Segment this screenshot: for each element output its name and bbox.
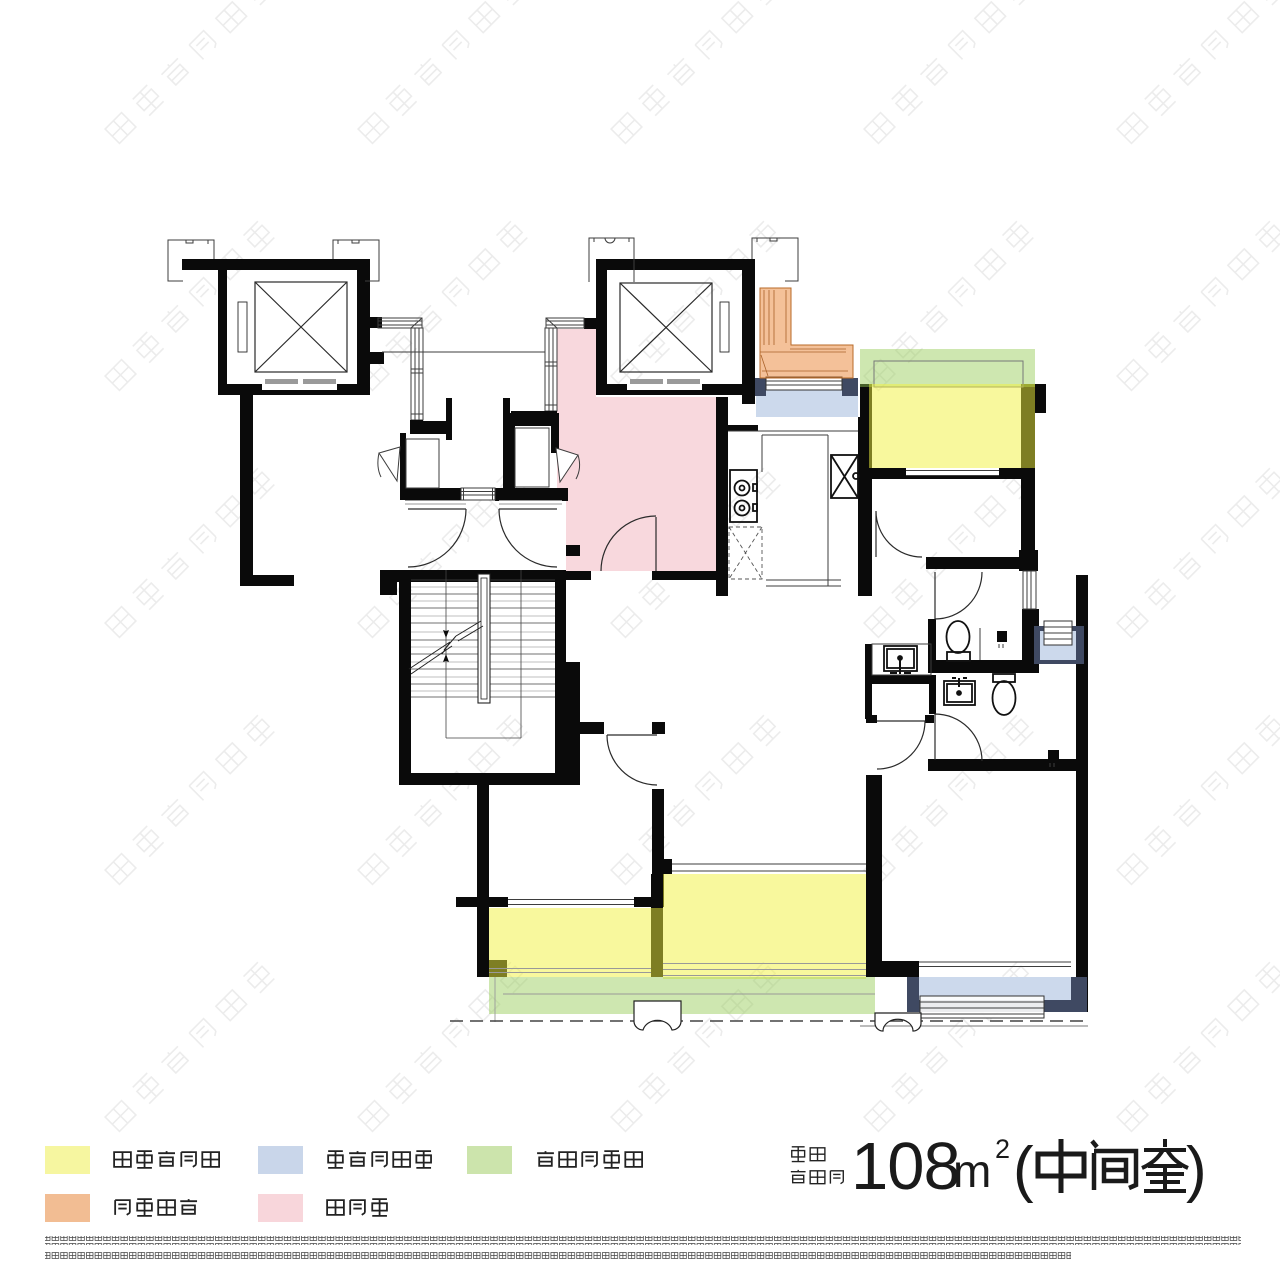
svg-text:m: m [953, 1145, 991, 1197]
svg-text:2: 2 [995, 1134, 1010, 1164]
svg-text:): ) [1186, 1135, 1207, 1204]
svg-text:(: ( [1013, 1135, 1034, 1204]
svg-text:108: 108 [851, 1129, 960, 1204]
